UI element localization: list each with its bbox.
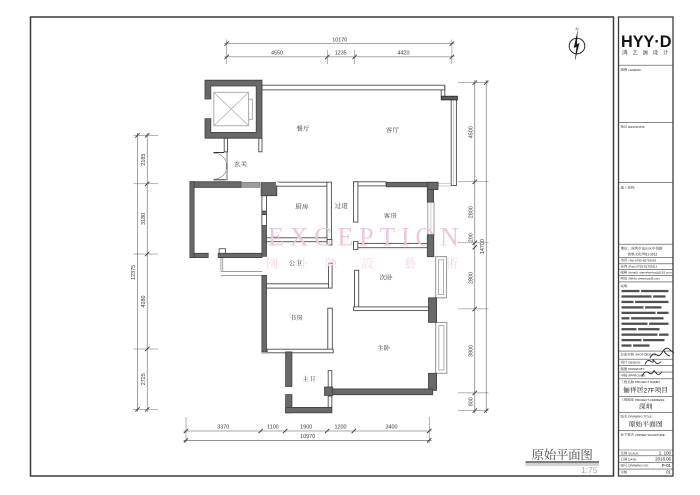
svg-text:REVISIONS: REVISIONS <box>628 125 644 129</box>
svg-text:12375: 12375 <box>131 265 137 280</box>
svg-text:2800: 2800 <box>469 272 475 284</box>
svg-text:800: 800 <box>469 397 475 406</box>
svg-text:DRAWING NO:: DRAWING NO: <box>628 464 649 468</box>
svg-text:4420: 4420 <box>398 51 410 57</box>
svg-text:4500: 4500 <box>469 126 475 138</box>
svg-text:(email): shenzhenhyy@163.com: (email): shenzhenhyy@163.com <box>629 271 673 275</box>
svg-text:P-01: P-01 <box>662 463 672 468</box>
svg-text:3180: 3180 <box>141 213 147 225</box>
svg-text:DESIGN:: DESIGN: <box>628 360 641 364</box>
svg-text:B1-3012: B1-3012 <box>645 252 657 256</box>
svg-text:10170: 10170 <box>332 37 347 43</box>
svg-text:3800: 3800 <box>469 345 475 357</box>
svg-text:PROJECT NAME?: PROJECT NAME? <box>635 380 660 384</box>
svg-text:(Fax) 0755-82753912: (Fax) 0755-82753912 <box>629 265 658 269</box>
svg-text:14700: 14700 <box>480 239 486 254</box>
svg-text:1200: 1200 <box>335 425 347 431</box>
svg-text:DATE:: DATE: <box>628 457 637 461</box>
svg-text:SCALE:: SCALE: <box>628 451 639 455</box>
svg-text:4550: 4550 <box>271 51 283 57</box>
svg-text:27F: 27F <box>644 387 655 394</box>
svg-text:2185: 2185 <box>141 154 147 166</box>
svg-text:2018.06: 2018.06 <box>655 457 671 462</box>
svg-text:(Web): www.hyyd5.com: (Web): www.hyyd5.com <box>629 277 661 281</box>
svg-text:LEGEND: LEGEND <box>628 68 641 72</box>
svg-text:01: 01 <box>666 469 671 474</box>
svg-text:200: 200 <box>469 233 475 242</box>
svg-text:1100: 1100 <box>267 425 279 431</box>
svg-text:EXCEPTION: EXCEPTION <box>268 223 465 252</box>
svg-text:3370: 3370 <box>217 425 229 431</box>
svg-text:(Tel) 0755-82753062: (Tel) 0755-82753062 <box>629 258 657 262</box>
svg-text:1235: 1235 <box>335 51 347 57</box>
svg-text:1:75: 1:75 <box>581 465 598 475</box>
svg-text:OWNER SIGNATURE:: OWNER SIGNATURE: <box>635 433 666 437</box>
svg-text:10970: 10970 <box>300 434 315 440</box>
svg-text:SHOP DESIGN:: SHOP DESIGN: <box>635 353 657 357</box>
svg-text:4280: 4280 <box>141 296 147 308</box>
svg-text:3400: 3400 <box>386 425 398 431</box>
svg-text:N: N <box>575 27 578 32</box>
svg-text:DRAWN BY:: DRAWN BY: <box>628 367 645 371</box>
svg-text:1900: 1900 <box>300 425 312 431</box>
svg-text:PROJECT ADDRESS:: PROJECT ADDRESS: <box>635 398 665 402</box>
svg-text:1: 100: 1: 100 <box>659 450 672 455</box>
svg-text:2725: 2725 <box>141 373 147 385</box>
svg-text:2800: 2800 <box>469 206 475 218</box>
svg-text:HYY·D: HYY·D <box>621 32 672 51</box>
svg-text:DRAWING TITLE:: DRAWING TITLE: <box>628 415 652 419</box>
